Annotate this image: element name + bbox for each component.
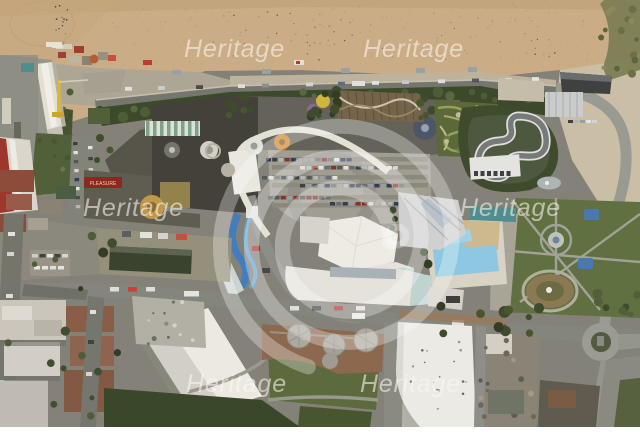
svg-text:Heritage: Heritage [184,35,285,63]
svg-text:Heritage: Heritage [83,194,184,222]
svg-text:Heritage: Heritage [363,35,464,63]
svg-text:Heritage: Heritage [460,194,561,222]
svg-text:Heritage: Heritage [186,370,287,398]
svg-text:Heritage: Heritage [360,370,461,398]
